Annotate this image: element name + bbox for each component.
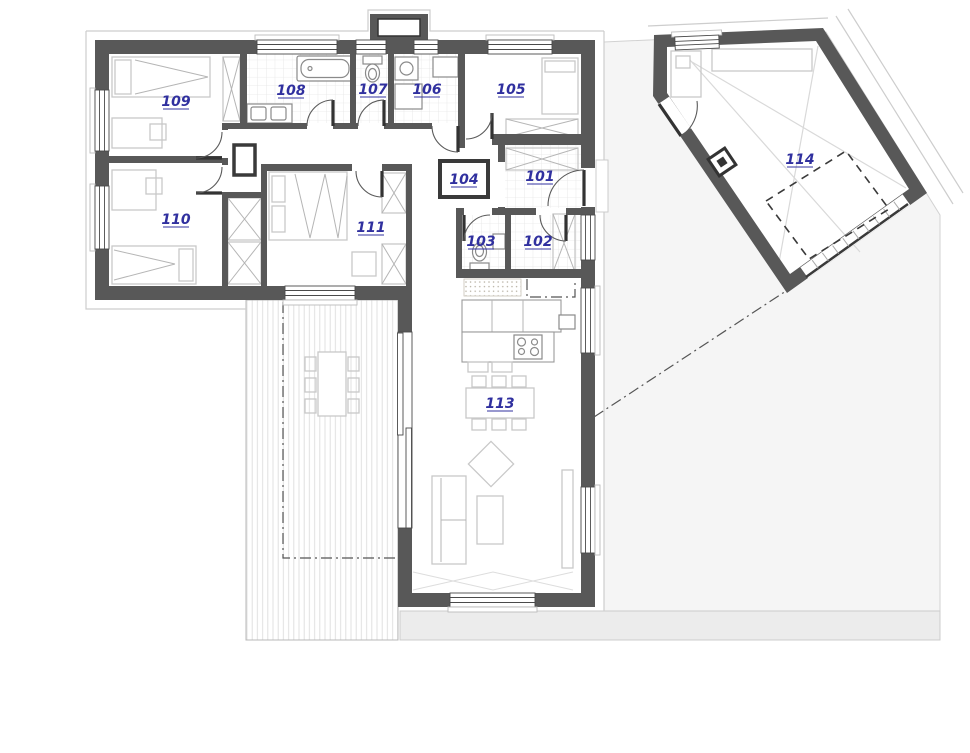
vanity-sink-icon [247,104,292,123]
window [581,215,595,260]
bathtub-icon [297,56,353,81]
window [414,40,438,54]
paving-strip [400,611,940,640]
window [90,88,109,153]
svg-text:106: 106 [412,82,441,98]
bed-icon [112,57,210,97]
entry-landing [596,160,608,212]
window [90,184,109,251]
svg-text:102: 102 [523,234,552,250]
room-label-104: 104 [449,172,478,188]
room-label-111: 111 [356,220,385,236]
sink-icon [559,315,575,329]
garage-window [672,30,723,50]
svg-text:104: 104 [449,172,478,188]
bed-icon [112,246,196,284]
window [356,40,386,54]
terrace-deck [246,300,398,640]
sliding-door [398,332,413,528]
shaft-box [234,145,255,175]
laundry-counter [433,57,458,77]
room-label-101: 101 [525,169,554,185]
floor-plan: 109 108 107 106 105 110 111 104 101 103 [0,0,970,753]
room-label-102: 102 [523,234,552,250]
svg-text:111: 111 [356,220,385,236]
bed-icon [542,58,578,114]
svg-text:108: 108 [276,83,305,99]
room-label-109: 109 [161,94,190,110]
svg-text:101: 101 [525,169,554,185]
window [581,485,600,555]
pantry-area [464,279,521,296]
svg-text:110: 110 [161,212,190,228]
svg-text:113: 113 [485,396,514,412]
window [255,35,339,54]
room-label-106: 106 [412,82,441,98]
desk-icon [112,118,162,148]
svg-text:107: 107 [358,82,387,98]
svg-text:105: 105 [496,82,525,98]
room-label-113: 113 [485,396,514,412]
room-label-107: 107 [358,82,387,98]
svg-text:109: 109 [161,94,190,110]
desk-icon [112,170,156,210]
kitchen-counter [462,300,561,332]
svg-text:114: 114 [785,152,814,168]
washer-icon [395,57,418,80]
room-label-105: 105 [496,82,525,98]
room-label-110: 110 [161,212,190,228]
window [448,593,537,612]
stove-icon [514,335,542,359]
room-label-114: 114 [785,152,814,168]
room-label-108: 108 [276,83,305,99]
svg-text:103: 103 [466,234,495,250]
room-label-103: 103 [466,234,495,250]
chimney [370,14,428,42]
window [581,286,600,355]
outdoor-table-icon [318,352,346,416]
window [283,286,357,305]
window [486,35,554,54]
